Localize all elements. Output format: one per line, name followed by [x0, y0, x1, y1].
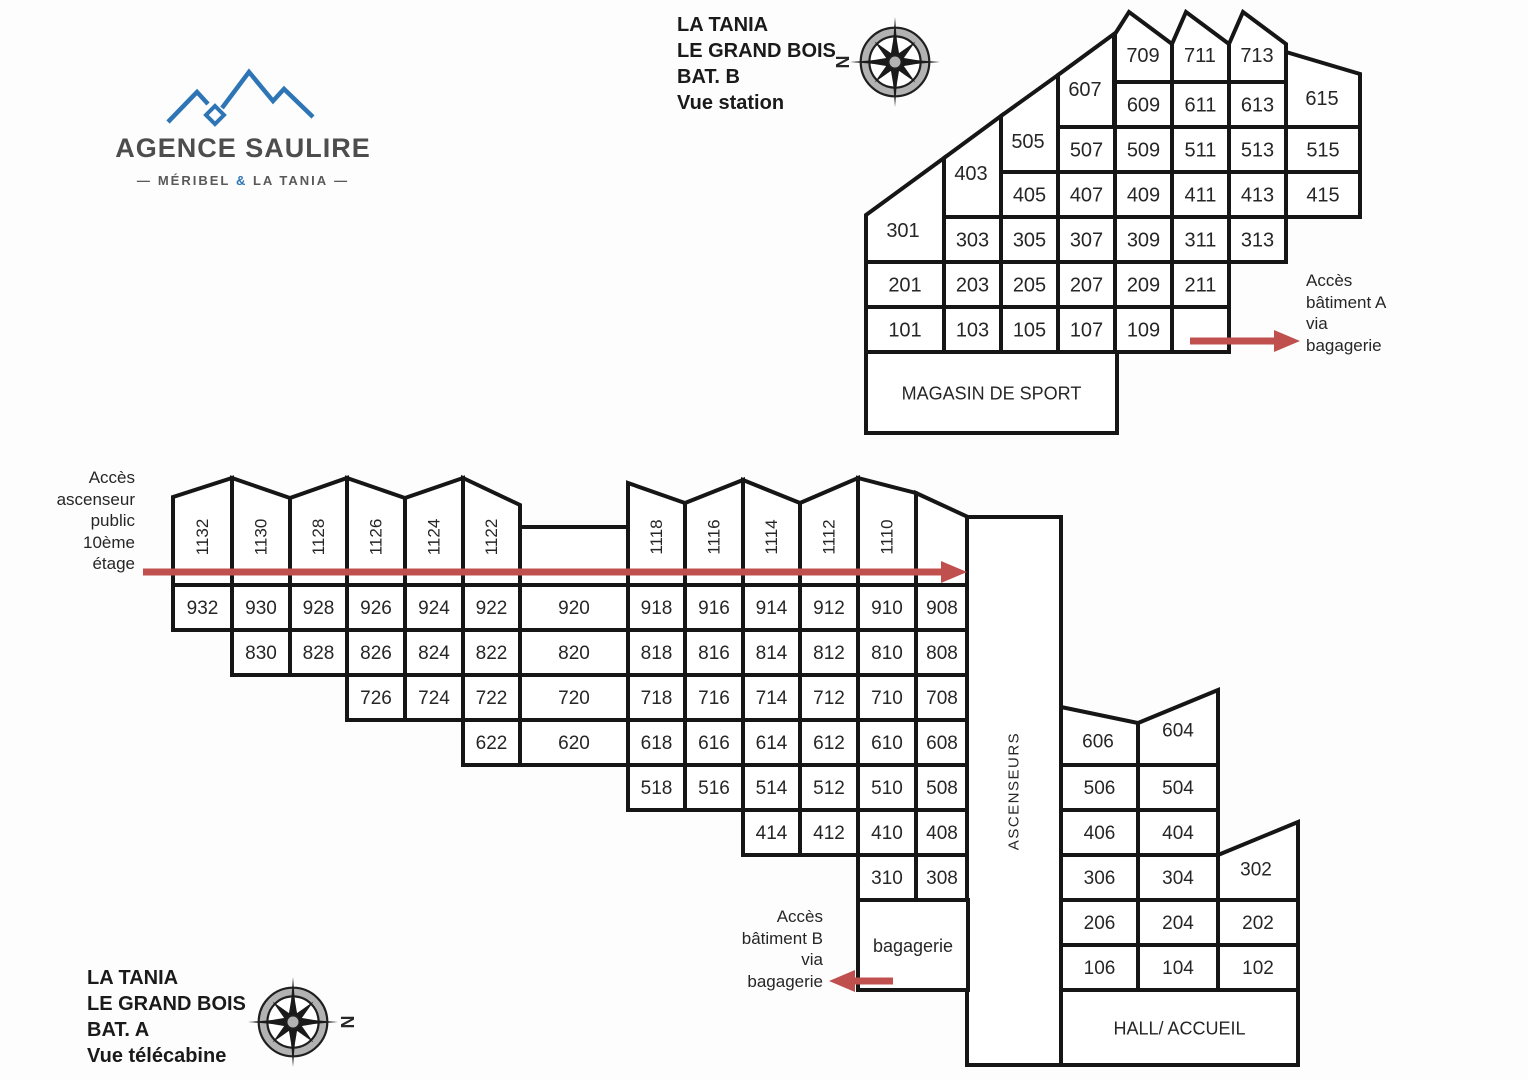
room-label-413: 413	[1241, 185, 1274, 207]
room-label-1110: 1110	[878, 519, 897, 554]
room-label-515: 515	[1306, 140, 1339, 162]
room-label-1122: 1122	[482, 519, 501, 556]
room-label-613: 613	[1241, 95, 1274, 117]
room-label-712: 712	[813, 688, 845, 709]
room-label-518: 518	[641, 778, 673, 799]
room-label-710: 710	[871, 688, 903, 709]
room-label-618: 618	[641, 733, 673, 754]
room-label-104: 104	[1162, 958, 1194, 979]
compass-icon-a: N	[248, 977, 357, 1067]
room-label-109: 109	[1127, 320, 1160, 342]
room-label-107: 107	[1070, 320, 1103, 342]
room-label-404: 404	[1162, 823, 1194, 844]
title-line: LA TANIA	[677, 12, 836, 38]
title-line: BAT. A	[87, 1017, 246, 1043]
note-line: Accès	[1306, 270, 1386, 292]
room-label-818: 818	[641, 643, 673, 664]
room-label-615: 615	[1305, 88, 1338, 110]
room-label-1124: 1124	[425, 519, 444, 556]
room-label-908: 908	[926, 598, 958, 619]
title-line: BAT. B	[677, 64, 836, 90]
agency-name: AGENCE SAULIRE	[110, 133, 376, 164]
room-label-513: 513	[1241, 140, 1274, 162]
room-label-922: 922	[476, 598, 508, 619]
room-label-916: 916	[698, 598, 730, 619]
room-label-616: 616	[698, 733, 730, 754]
room-label-507: 507	[1070, 140, 1103, 162]
room-label-920: 920	[558, 598, 590, 619]
room-label-910: 910	[871, 598, 903, 619]
tagline-dash-left: —	[131, 173, 158, 188]
room-label-407: 407	[1070, 185, 1103, 207]
note-line: bâtiment A	[1306, 292, 1386, 314]
room-label-604: 604	[1162, 721, 1194, 742]
room-label-724: 724	[418, 688, 450, 709]
room-label-912: 912	[813, 598, 845, 619]
note-line: bagagerie	[1306, 335, 1386, 357]
room-label-822: 822	[476, 643, 508, 664]
note-line: public	[28, 510, 135, 532]
room-label-814: 814	[756, 643, 788, 664]
room-label-310: 310	[871, 868, 903, 889]
room-label-505: 505	[1011, 131, 1044, 153]
room-label-1128: 1128	[309, 519, 328, 556]
access-batiment-a-note: Accès bâtiment A via bagagerie	[1306, 270, 1386, 356]
note-line: bâtiment B	[690, 928, 823, 950]
room-label-718: 718	[641, 688, 673, 709]
room-label-303: 303	[956, 230, 989, 252]
title-line: Vue station	[677, 90, 836, 116]
room-label-820: 820	[558, 643, 590, 664]
room-label-308: 308	[926, 868, 958, 889]
note-line: 10ème	[28, 532, 135, 554]
empty-roof-cell-920	[520, 527, 628, 585]
room-label-311: 311	[1185, 230, 1217, 252]
room-label-ascenseurs: ASCENSEURS	[1006, 732, 1023, 850]
compass-north-letter: N	[833, 56, 853, 69]
room-label-105: 105	[1013, 320, 1046, 342]
tagline-dash-right: —	[328, 173, 355, 188]
note-line: étage	[28, 553, 135, 575]
room-label-711: 711	[1184, 45, 1216, 67]
room-label-606: 606	[1082, 732, 1114, 753]
note-line: via	[1306, 313, 1386, 335]
room-label-824: 824	[418, 643, 450, 664]
room-label-830: 830	[245, 643, 277, 664]
room-label-bagagerie: bagagerie	[873, 936, 953, 956]
room-label-202: 202	[1242, 913, 1274, 934]
agency-tagline: —MÉRIBEL & LA TANIA—	[110, 173, 376, 188]
bat-a-title: LA TANIA LE GRAND BOIS BAT. A Vue téléca…	[87, 965, 246, 1069]
room-label-203: 203	[956, 275, 989, 297]
room-label-608: 608	[926, 733, 958, 754]
room-label-812: 812	[813, 643, 845, 664]
room-label-1116: 1116	[705, 519, 724, 554]
tagline-left: MÉRIBEL	[158, 173, 231, 188]
title-line: Vue télécabine	[87, 1043, 246, 1069]
logo-mountain-icon	[168, 72, 313, 124]
room-label-504: 504	[1162, 778, 1194, 799]
room-label-410: 410	[871, 823, 903, 844]
room-label-204: 204	[1162, 913, 1194, 934]
room-label-716: 716	[698, 688, 730, 709]
room-label-302: 302	[1240, 860, 1272, 881]
room-label-313: 313	[1241, 230, 1274, 252]
room-label-612: 612	[813, 733, 845, 754]
room-label-1132: 1132	[193, 519, 212, 556]
room-label-614: 614	[756, 733, 788, 754]
room-label-924: 924	[418, 598, 450, 619]
room-label-415: 415	[1306, 185, 1339, 207]
room-label-816: 816	[698, 643, 730, 664]
room-label-409: 409	[1127, 185, 1160, 207]
room-label-102: 102	[1242, 958, 1274, 979]
room-label-508: 508	[926, 778, 958, 799]
room-label-406: 406	[1084, 823, 1116, 844]
room-label-620: 620	[558, 733, 590, 754]
room-label-307: 307	[1070, 230, 1103, 252]
room-label-709: 709	[1126, 45, 1159, 67]
room-label-609: 609	[1127, 95, 1160, 117]
room-label-930: 930	[245, 598, 277, 619]
room-label-309: 309	[1127, 230, 1160, 252]
room-label-926: 926	[360, 598, 392, 619]
room-label-207: 207	[1070, 275, 1103, 297]
room-cell-301	[866, 158, 944, 262]
room-label-722: 722	[476, 688, 508, 709]
access-batiment-b-note: Accès bâtiment B via bagagerie	[690, 906, 823, 992]
note-line: Accès	[690, 906, 823, 928]
room-label-205: 205	[1013, 275, 1046, 297]
compass-north-letter: N	[337, 1016, 357, 1029]
room-label-509: 509	[1127, 140, 1160, 162]
room-label-411: 411	[1185, 185, 1217, 207]
room-label-211: 211	[1185, 275, 1217, 297]
room-label-414: 414	[756, 823, 788, 844]
room-label-714: 714	[756, 688, 788, 709]
room-label-201: 201	[888, 275, 921, 297]
room-cell-505	[1001, 75, 1058, 172]
room-label-405: 405	[1013, 185, 1046, 207]
room-label-810: 810	[871, 643, 903, 664]
room-label-1114: 1114	[762, 519, 781, 554]
room-label-928: 928	[303, 598, 335, 619]
floorplan-page: 7097117136076096116136155055075095115135…	[0, 0, 1528, 1080]
room-label-206: 206	[1084, 913, 1116, 934]
room-label-918: 918	[641, 598, 673, 619]
room-label-932: 932	[187, 598, 219, 619]
compass-icon-b: N	[833, 17, 940, 107]
room-label-708: 708	[926, 688, 958, 709]
note-line: ascenseur	[28, 489, 135, 511]
room-label-209: 209	[1127, 275, 1160, 297]
room-label-103: 103	[956, 320, 989, 342]
room-label-726: 726	[360, 688, 392, 709]
room-label-301: 301	[886, 220, 919, 242]
title-line: LE GRAND BOIS	[87, 991, 246, 1017]
title-line: LE GRAND BOIS	[677, 38, 836, 64]
room-label-808: 808	[926, 643, 958, 664]
room-label-914: 914	[756, 598, 788, 619]
title-line: LA TANIA	[87, 965, 246, 991]
room-label-101: 101	[888, 320, 921, 342]
room-label-412: 412	[813, 823, 845, 844]
empty-cell-bat-b	[1172, 307, 1229, 352]
room-label-828: 828	[303, 643, 335, 664]
room-label-610: 610	[871, 733, 903, 754]
room-label-106: 106	[1084, 958, 1116, 979]
room-label-304: 304	[1162, 868, 1194, 889]
room-label-506: 506	[1084, 778, 1116, 799]
room-label-713: 713	[1240, 45, 1273, 67]
room-label-305: 305	[1013, 230, 1046, 252]
room-label-306: 306	[1084, 868, 1116, 889]
room-label-622: 622	[476, 733, 508, 754]
room-label-510: 510	[871, 778, 903, 799]
agency-logo: AGENCE SAULIRE —MÉRIBEL & LA TANIA—	[110, 133, 376, 188]
room-label-514: 514	[756, 778, 788, 799]
room-label-511: 511	[1185, 140, 1217, 162]
room-label-611: 611	[1185, 95, 1217, 117]
room-label-512: 512	[813, 778, 845, 799]
room-label-1112: 1112	[820, 519, 839, 554]
note-line: via	[690, 949, 823, 971]
room-label-magasin: MAGASIN DE SPORT	[902, 384, 1082, 404]
room-label-516: 516	[698, 778, 730, 799]
note-line: bagagerie	[690, 971, 823, 993]
room-label-826: 826	[360, 643, 392, 664]
room-label-1118: 1118	[647, 519, 666, 554]
public-elevator-note: Accès ascenseur public 10ème étage	[28, 467, 135, 575]
note-line: Accès	[28, 467, 135, 489]
room-label-1126: 1126	[367, 519, 386, 556]
room-label-hall-accueil: HALL/ ACCUEIL	[1113, 1019, 1245, 1039]
room-label-1130: 1130	[252, 519, 271, 556]
tagline-right: LA TANIA	[253, 173, 328, 188]
room-label-607: 607	[1068, 79, 1101, 101]
tagline-ampersand: &	[236, 173, 247, 188]
room-label-403: 403	[954, 163, 987, 185]
bat-b-title: LA TANIA LE GRAND BOIS BAT. B Vue statio…	[677, 12, 836, 116]
room-label-408: 408	[926, 823, 958, 844]
room-label-720: 720	[558, 688, 590, 709]
